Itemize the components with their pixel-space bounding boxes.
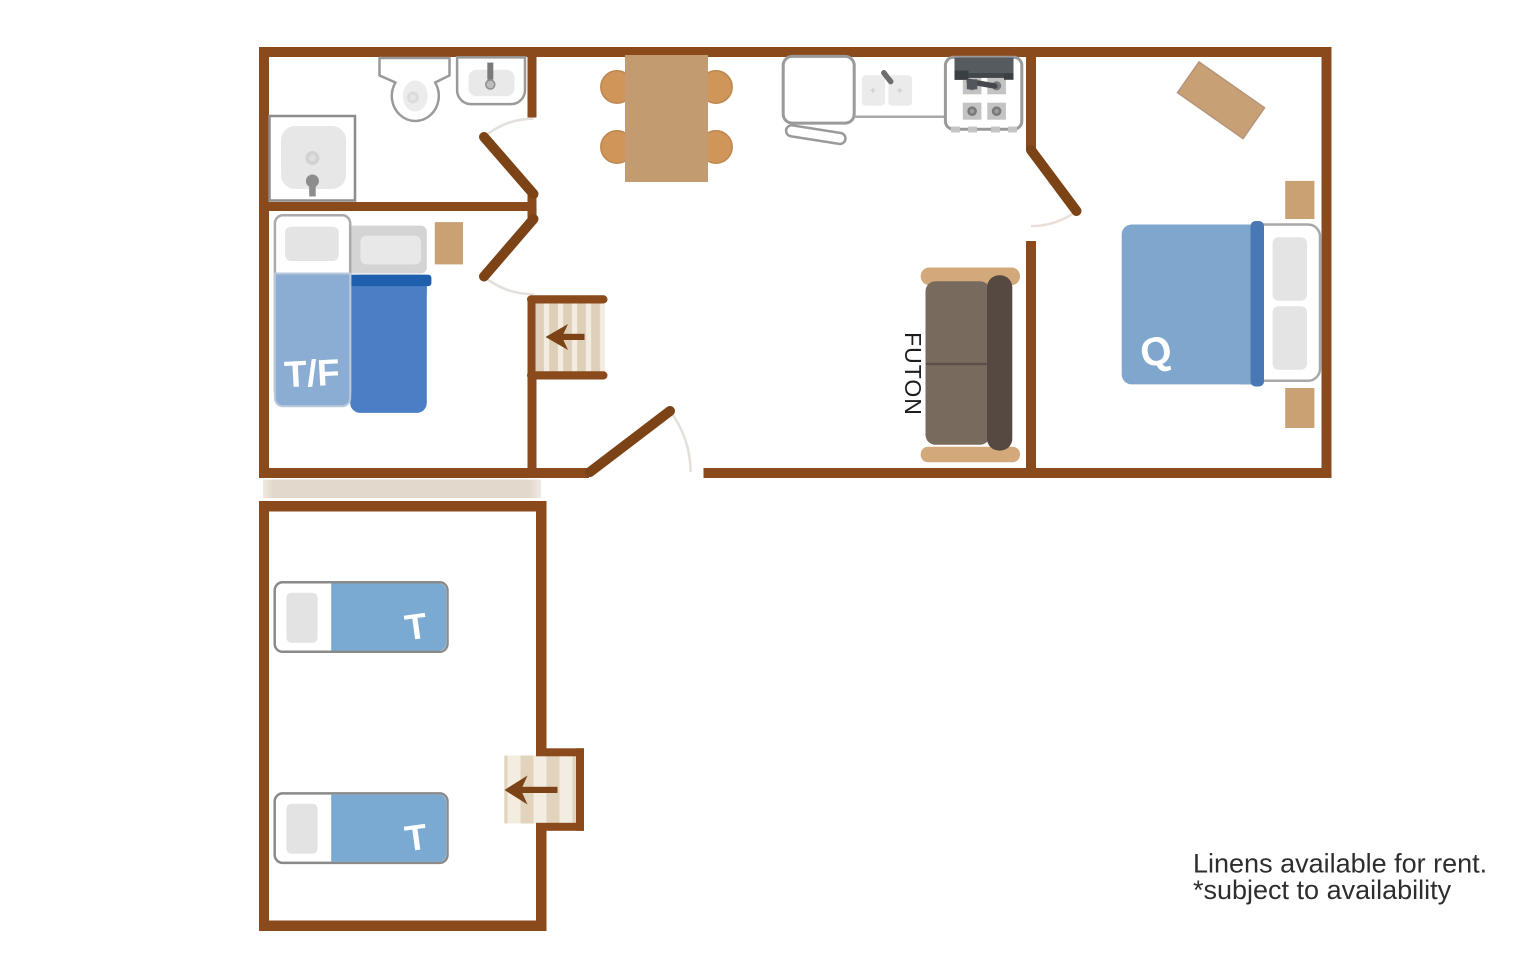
svg-text:FUTON: FUTON (900, 332, 926, 416)
svg-text:*subject to availability: *subject to availability (1193, 875, 1452, 905)
svg-text:Linens available for rent.: Linens available for rent. (1193, 849, 1487, 879)
svg-text:T/F: T/F (283, 352, 341, 396)
